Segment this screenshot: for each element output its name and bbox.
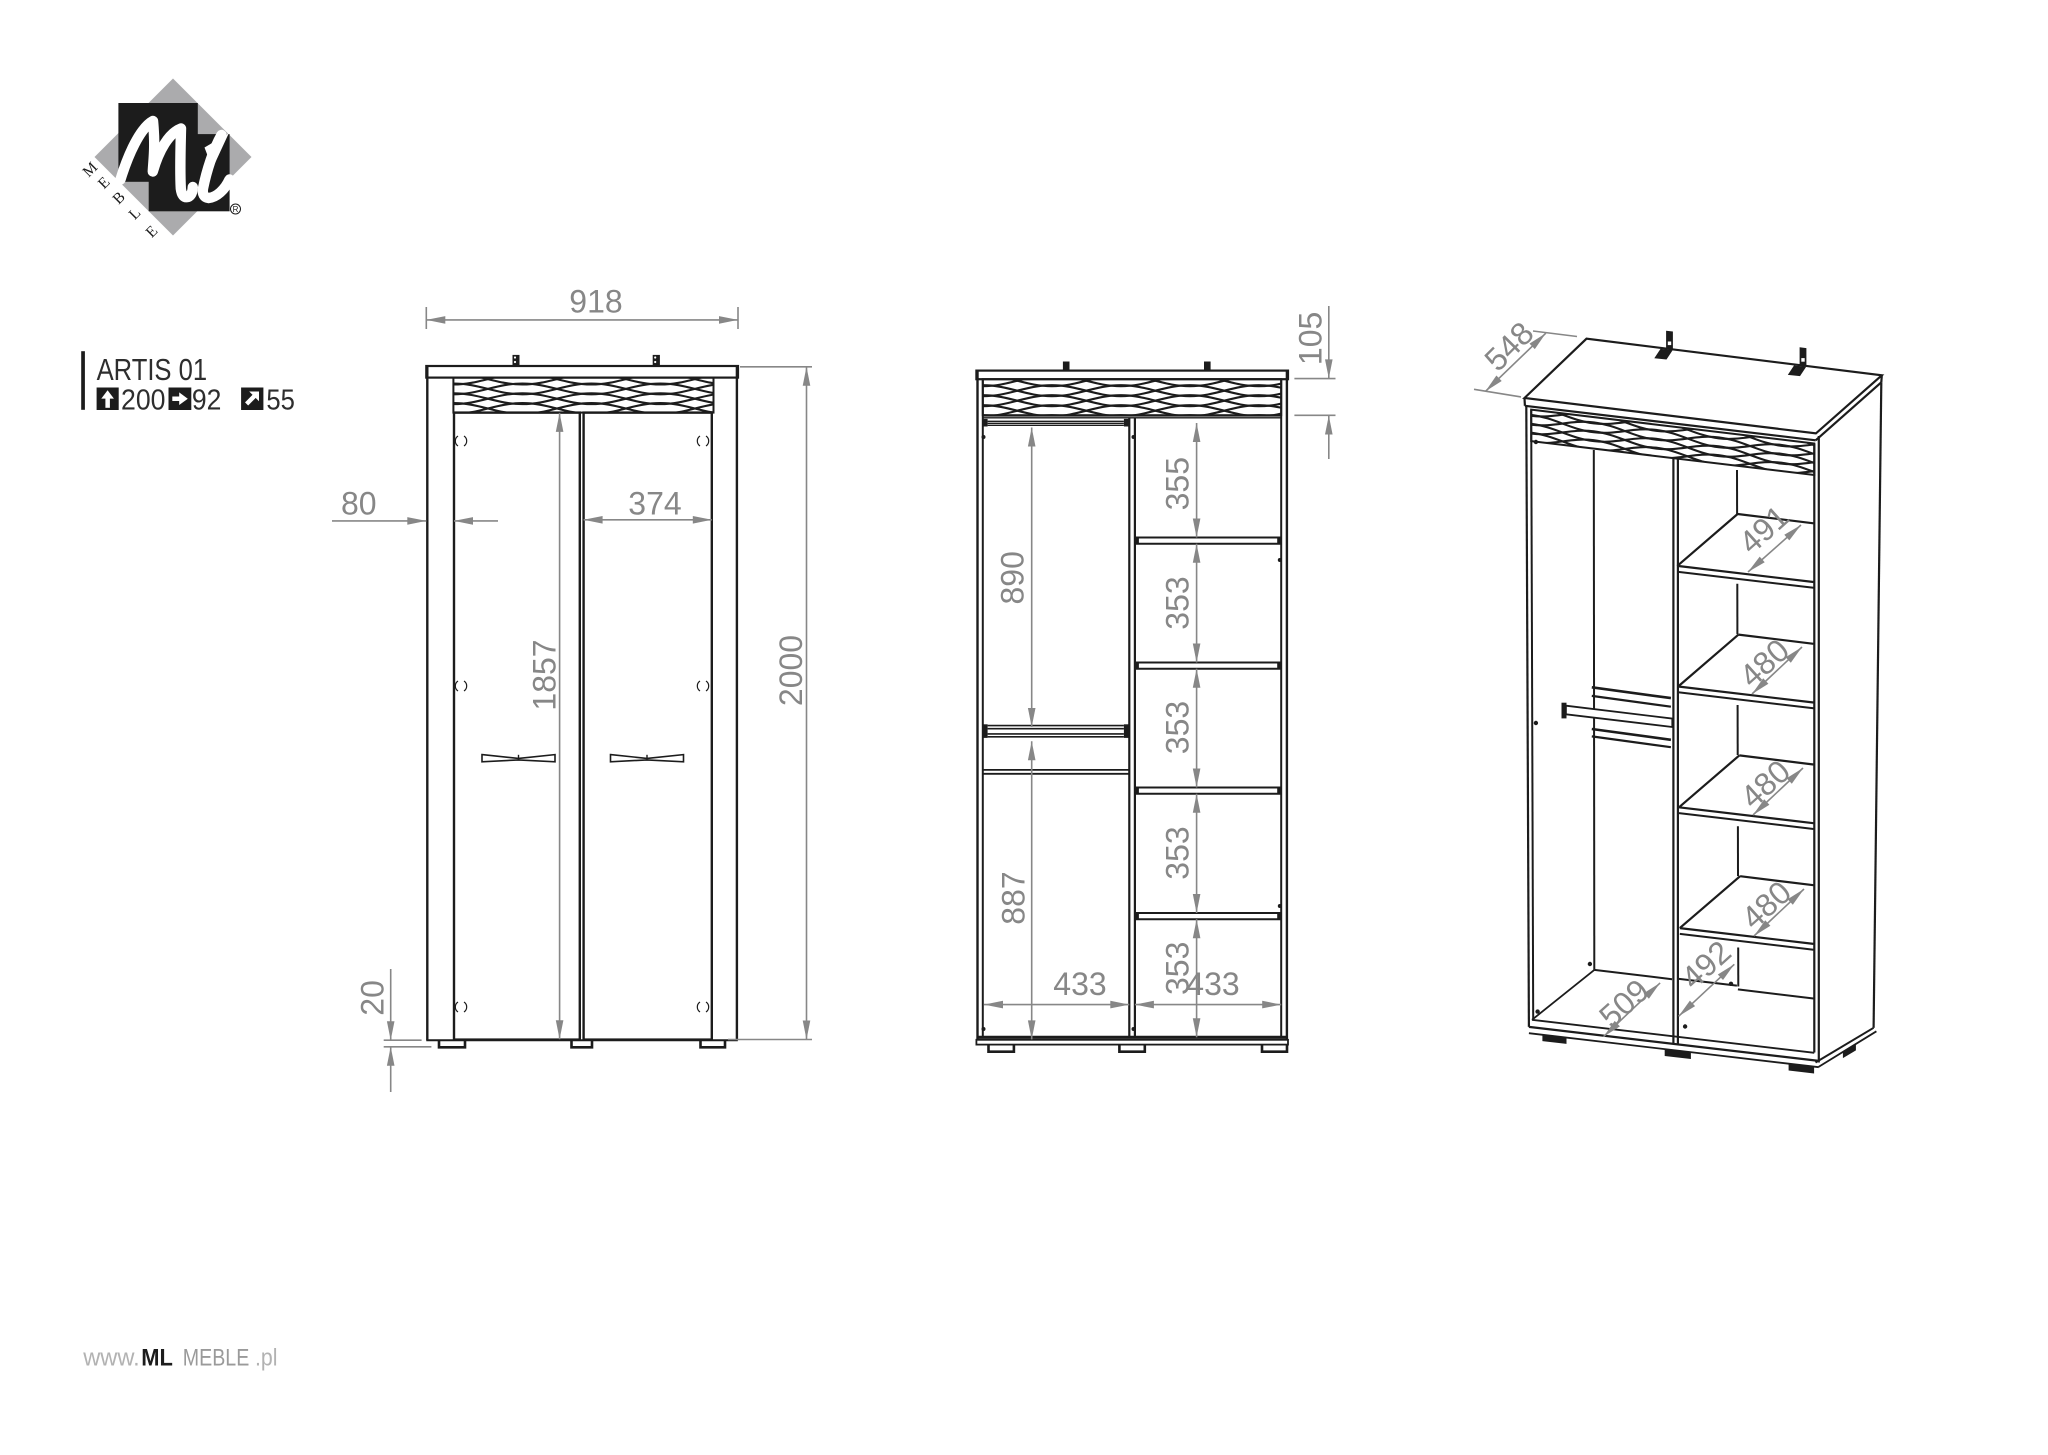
svg-text:353: 353 bbox=[1160, 826, 1196, 879]
svg-text:80: 80 bbox=[341, 485, 377, 521]
svg-text:92: 92 bbox=[192, 384, 222, 416]
svg-text:887: 887 bbox=[995, 871, 1031, 924]
svg-text:.pl: .pl bbox=[255, 1345, 278, 1372]
svg-text:355: 355 bbox=[1160, 457, 1196, 510]
svg-text:55: 55 bbox=[266, 384, 295, 416]
svg-text:MEBLE: MEBLE bbox=[183, 1345, 250, 1372]
svg-text:890: 890 bbox=[994, 551, 1030, 604]
svg-text:2000: 2000 bbox=[773, 635, 809, 706]
svg-text:20: 20 bbox=[355, 980, 391, 1016]
svg-text:R: R bbox=[233, 205, 239, 214]
svg-text:1857: 1857 bbox=[527, 639, 563, 710]
svg-text:918: 918 bbox=[569, 283, 622, 319]
svg-text:374: 374 bbox=[628, 485, 681, 521]
svg-text:353: 353 bbox=[1160, 576, 1196, 629]
svg-text:ARTIS 01: ARTIS 01 bbox=[97, 352, 208, 387]
svg-text:105: 105 bbox=[1293, 312, 1329, 365]
svg-text:433: 433 bbox=[1053, 966, 1106, 1002]
svg-text:ML: ML bbox=[141, 1345, 173, 1372]
svg-text:200: 200 bbox=[121, 384, 166, 416]
svg-text:433: 433 bbox=[1186, 966, 1239, 1002]
svg-text:www.: www. bbox=[82, 1345, 139, 1372]
svg-text:353: 353 bbox=[1160, 701, 1196, 754]
